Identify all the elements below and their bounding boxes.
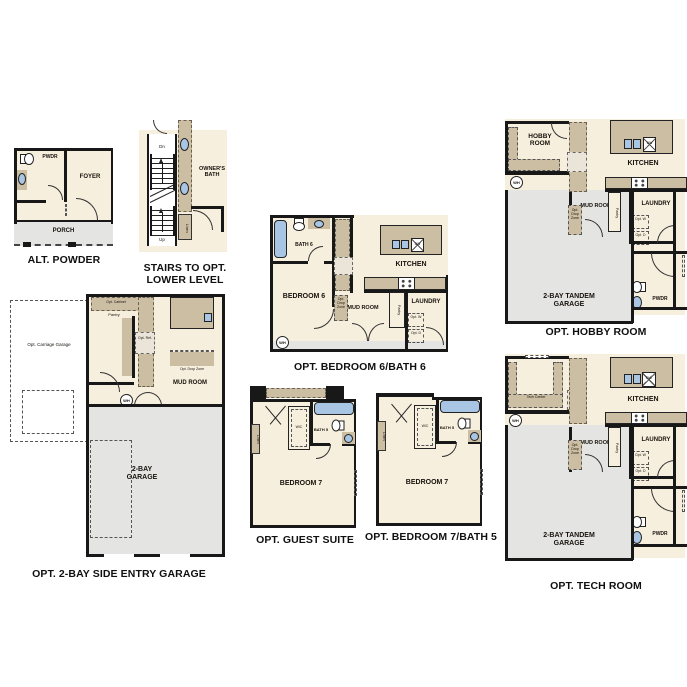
floorplan-sheet: PWDR FOYER PORCH ALT. POWDER Dn Up Linen… (0, 0, 687, 687)
room-label-bedroom7: BEDROOM 7 (266, 480, 336, 488)
header-wall (326, 386, 344, 399)
room-label-porch: PORCH (14, 228, 113, 235)
wall (14, 220, 113, 222)
room-label-kitchen: KITCHEN (612, 396, 674, 404)
sink-icon (18, 173, 26, 185)
kitchen-sink-icon (401, 240, 409, 249)
kitchen-sink-icon (204, 313, 212, 322)
arrow-up-icon (159, 208, 163, 213)
wall (89, 404, 222, 407)
wall (505, 171, 573, 175)
closet-label-linen: Linen (252, 427, 259, 451)
plan-caption: OPT. GUEST SUITE (236, 534, 374, 546)
floorplan-bedroom6: BATH 6 BEDROOM 6 DW KITCHEN MUD ROOM Opt… (268, 213, 452, 375)
bathtub-icon (440, 400, 480, 413)
opt-washer-label: Opt. W (408, 316, 424, 320)
window-dashed (480, 469, 483, 495)
wall (505, 558, 633, 561)
room-label-garage: 2-BAY TANDEM GARAGE (529, 293, 609, 309)
range-icon (398, 277, 415, 290)
sink-icon (344, 434, 353, 443)
room-label-laundry: LAUNDRY (635, 437, 677, 444)
wall (270, 349, 448, 352)
water-heater-icon: WH (510, 176, 523, 189)
wall (505, 321, 633, 324)
room-label-owners-bath: OWNER'S BATH (191, 166, 233, 178)
wall (270, 215, 273, 349)
sink-icon (180, 138, 189, 151)
window-dashed (682, 255, 685, 277)
wall (250, 399, 253, 527)
header-cabinet (266, 388, 326, 398)
wall-pwdr (16, 200, 46, 203)
room-label-laundry: LAUNDRY (635, 201, 677, 208)
room-label-mud: MUD ROOM (166, 380, 214, 387)
wall (222, 294, 225, 556)
wall (480, 397, 483, 525)
porch-post (68, 242, 76, 247)
opt-drop-zone-label: Opt. Drop Zone (176, 368, 208, 372)
plan-caption: OPT. BEDROOM 7/BATH 5 (360, 531, 502, 543)
wall (191, 206, 223, 209)
header-wall (250, 386, 266, 399)
closet-label-linen: Linen (378, 424, 385, 448)
opt-dryer-label: Opt. D (632, 470, 649, 474)
garage-door-gap (104, 554, 134, 557)
pantry-counter (122, 318, 132, 376)
dishwasher-label: DW (643, 142, 656, 146)
wall-bath (310, 399, 313, 445)
stair-arrow-line (162, 162, 163, 184)
floorplan-side-garage: Opt. Carriage Garage Opt. Cabinet Pantry… (8, 288, 230, 580)
toilet-icon (292, 218, 304, 231)
kitchen-sink-icon (624, 374, 632, 384)
opt-drop-zone-label: Opt. Drop Zone (334, 298, 348, 310)
toilet-icon (332, 419, 345, 431)
wall (111, 148, 114, 224)
range-icon (631, 177, 648, 189)
opt-cabinet-label: Opt. Cabinet (91, 301, 141, 305)
dishwasher-label: DW (411, 243, 424, 247)
room-label-kitchen: KITCHEN (380, 261, 442, 269)
room-label-bedroom6: BEDROOM 6 (272, 293, 336, 301)
closet-label-pantry: Pantry (92, 313, 136, 317)
floorplan-tech: Tech Center Opt. Ref WH DW KITCHEN MUD R… (505, 350, 687, 592)
room-label-garage: 2-BAY TANDEM GARAGE (529, 532, 609, 548)
opt-cabinet-dashed (334, 257, 353, 275)
plan-caption: STAIRS TO OPT. LOWER LEVEL (125, 262, 245, 286)
opt-ref-label: Opt. Ref. (135, 337, 155, 341)
toilet-icon (632, 280, 646, 292)
kitchen-sink-icon (633, 374, 641, 384)
floorplan-bedroom7-bath5: Linen WIC BATH 5 BEDROOM 7 OPT. BEDROOM … (374, 389, 488, 545)
wall-bath (270, 261, 308, 264)
sink-icon (180, 182, 189, 195)
wall (376, 523, 482, 526)
plan-caption: OPT. HOBBY ROOM (505, 326, 687, 338)
wall-pwdr (64, 148, 67, 202)
room-label-laundry: LAUNDRY (406, 299, 446, 306)
wall (631, 307, 687, 310)
room-label-pwdr: PWDR (645, 297, 675, 303)
opt-ref-box (567, 152, 587, 172)
garage-door-gap (160, 554, 190, 557)
wall (350, 215, 353, 293)
stairs-dn-label: Dn (148, 144, 176, 149)
plan-caption: OPT. TECH ROOM (505, 580, 687, 592)
dishwasher-label: DW (642, 377, 656, 381)
wall (673, 426, 676, 546)
window-dashed (354, 470, 357, 496)
room-label-hobby: HOBBY ROOM (519, 133, 561, 148)
bathtub-icon (274, 220, 287, 258)
closet-label-wic: WIC (288, 426, 310, 430)
floorplan-stairs: Dn Up Linen OWNER'S BATH STAIRS TO OPT. … (135, 118, 235, 288)
toilet-icon (20, 154, 34, 166)
vanity-counter (178, 120, 192, 212)
arrow-up-icon (159, 158, 163, 163)
sink-icon (314, 220, 324, 228)
wall (631, 425, 634, 560)
hall-cabinet-strip (335, 219, 350, 291)
opt-dryer-label: Opt. D (632, 234, 649, 238)
plan-caption: ALT. POWDER (8, 254, 120, 266)
opt-carriage-garage-label: Opt. Carriage Garage (24, 342, 74, 347)
room-label-bath5: BATH 5 (436, 426, 458, 430)
wall (250, 525, 356, 528)
room-label-bath5: BATH 5 (310, 428, 332, 432)
closet-label-linen: Linen (181, 217, 188, 239)
room-label-foyer: FOYER (70, 174, 110, 181)
wall (631, 190, 634, 323)
plan-caption: OPT. 2-BAY SIDE ENTRY GARAGE (8, 568, 230, 580)
garage-interior-dashed (90, 440, 132, 538)
drop-zone-counter (170, 352, 214, 366)
tech-center-label: Tech Center (517, 396, 555, 400)
floorplan-alt-powder: PWDR FOYER PORCH ALT. POWDER (14, 148, 115, 270)
wall (505, 425, 508, 560)
room-label-pwdr: PWDR (645, 532, 675, 538)
bathtub-icon (314, 402, 354, 415)
opening-dashed (65, 204, 67, 216)
opt-drop-zone-label: Opt. Drop Zone (568, 209, 582, 221)
closet-label-pantry: Pantry (611, 200, 618, 226)
range-icon (631, 412, 648, 424)
wall (673, 191, 676, 309)
stair-arrow-line (162, 212, 163, 232)
porch-post (23, 242, 31, 247)
floorplan-guest-suite: Linen WIC BATH 5 BEDROOM 7 OPT. GUEST SU… (248, 386, 362, 548)
opt-washer-label: Opt. W (632, 218, 649, 222)
wall (354, 399, 357, 527)
sink-icon (632, 531, 642, 544)
closet-label-pantry: Pantry (393, 298, 400, 322)
closet-label-pantry: Pantry (611, 435, 618, 461)
closet-label-wic: WIC (414, 425, 436, 429)
room-label-mud: MUD ROOM (346, 305, 380, 311)
opt-dryer-label: Opt. D (408, 332, 424, 336)
toilet-icon (632, 515, 646, 527)
opening-dashed (525, 355, 549, 358)
sink-icon (470, 432, 479, 441)
carriage-inner-dashed (22, 390, 74, 434)
kitchen-sink-icon (624, 139, 632, 149)
opt-drop-zone-label: Opt. Drop Zone (568, 444, 582, 456)
wall (505, 410, 571, 414)
kitchen-sink-icon (392, 240, 400, 249)
water-heater-icon: WH (276, 336, 289, 349)
hobby-counter (508, 159, 560, 171)
kitchen-sink-icon (633, 139, 641, 149)
stairs-up-label: Up (148, 237, 176, 242)
wall (505, 190, 508, 323)
wall (631, 544, 687, 547)
wall-bath (436, 397, 439, 443)
room-label-bedroom7: BEDROOM 7 (392, 479, 462, 487)
room-label-kitchen: KITCHEN (612, 160, 674, 168)
opt-washer-label: Opt. W (632, 454, 649, 458)
floorplan-hobby: HOBBY ROOM WH DW KITCHEN MUD ROOM Opt. D… (505, 113, 687, 337)
room-label-pwdr: PWDR (36, 155, 64, 161)
wall (221, 206, 224, 232)
toilet-icon (458, 417, 471, 429)
kitchen-island (610, 120, 673, 154)
wall (376, 397, 379, 525)
water-heater-icon: WH (509, 414, 522, 427)
plan-caption: OPT. BEDROOM 6/BATH 6 (268, 361, 452, 373)
window-dashed (682, 490, 685, 512)
room-label-garage: 2-BAY GARAGE (116, 466, 168, 482)
cabinet-strip (569, 358, 587, 424)
